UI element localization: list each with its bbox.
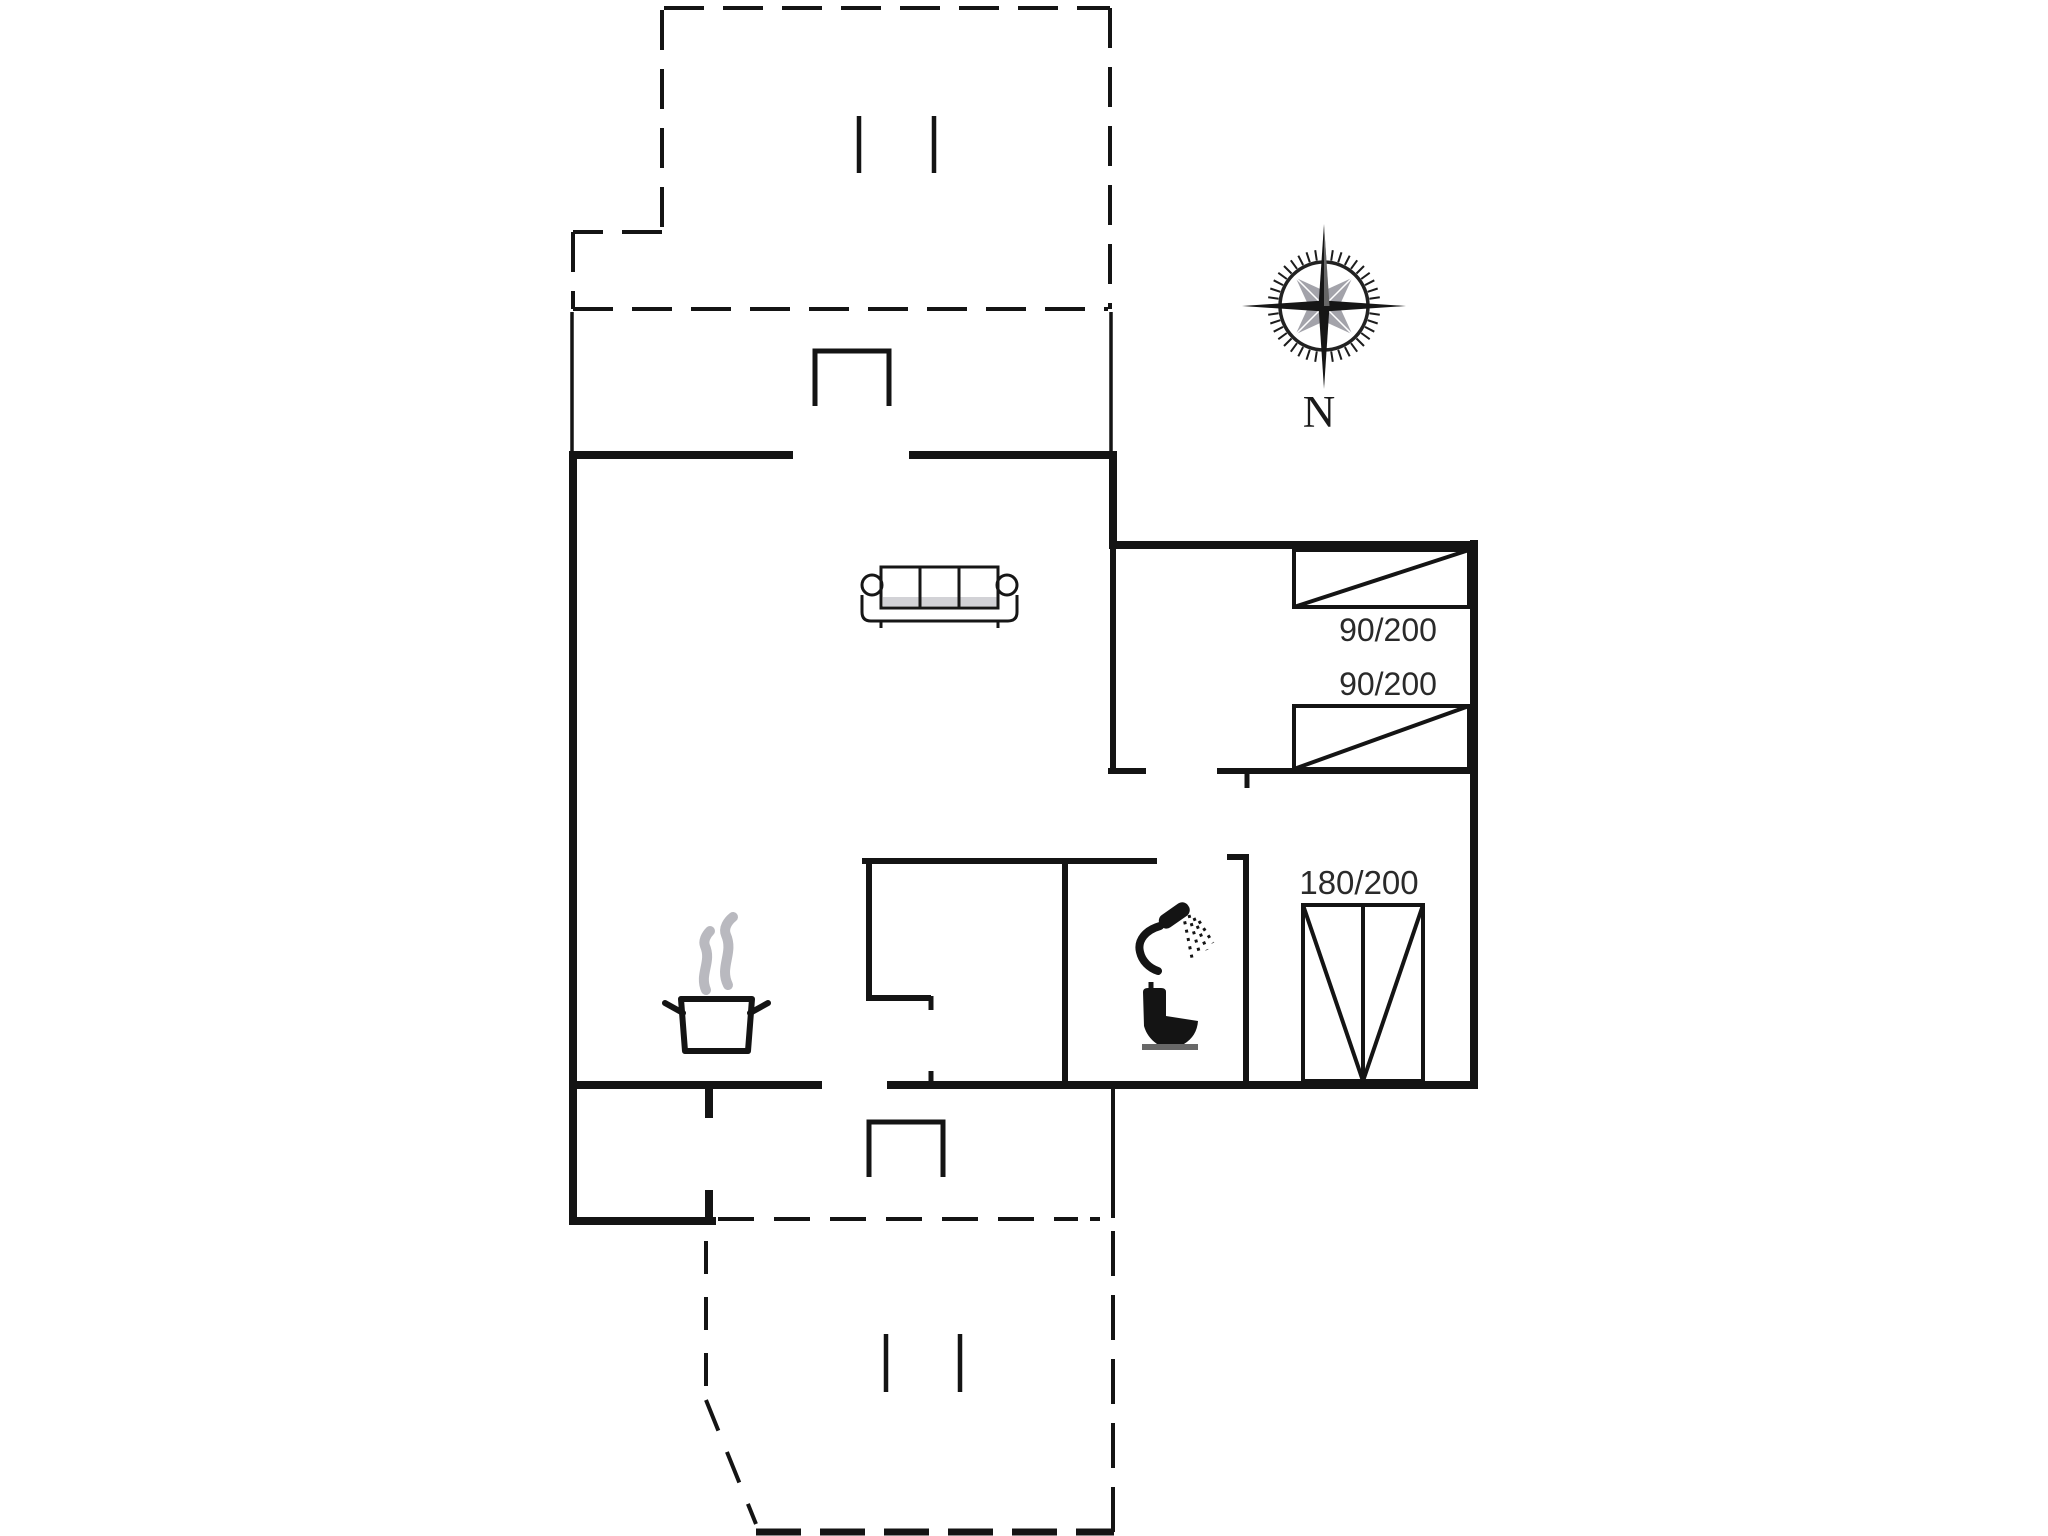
svg-text:90/200: 90/200 [1339,612,1437,648]
svg-text:180/200: 180/200 [1299,864,1418,901]
svg-text:N: N [1303,387,1336,437]
svg-text:90/200: 90/200 [1339,666,1437,702]
